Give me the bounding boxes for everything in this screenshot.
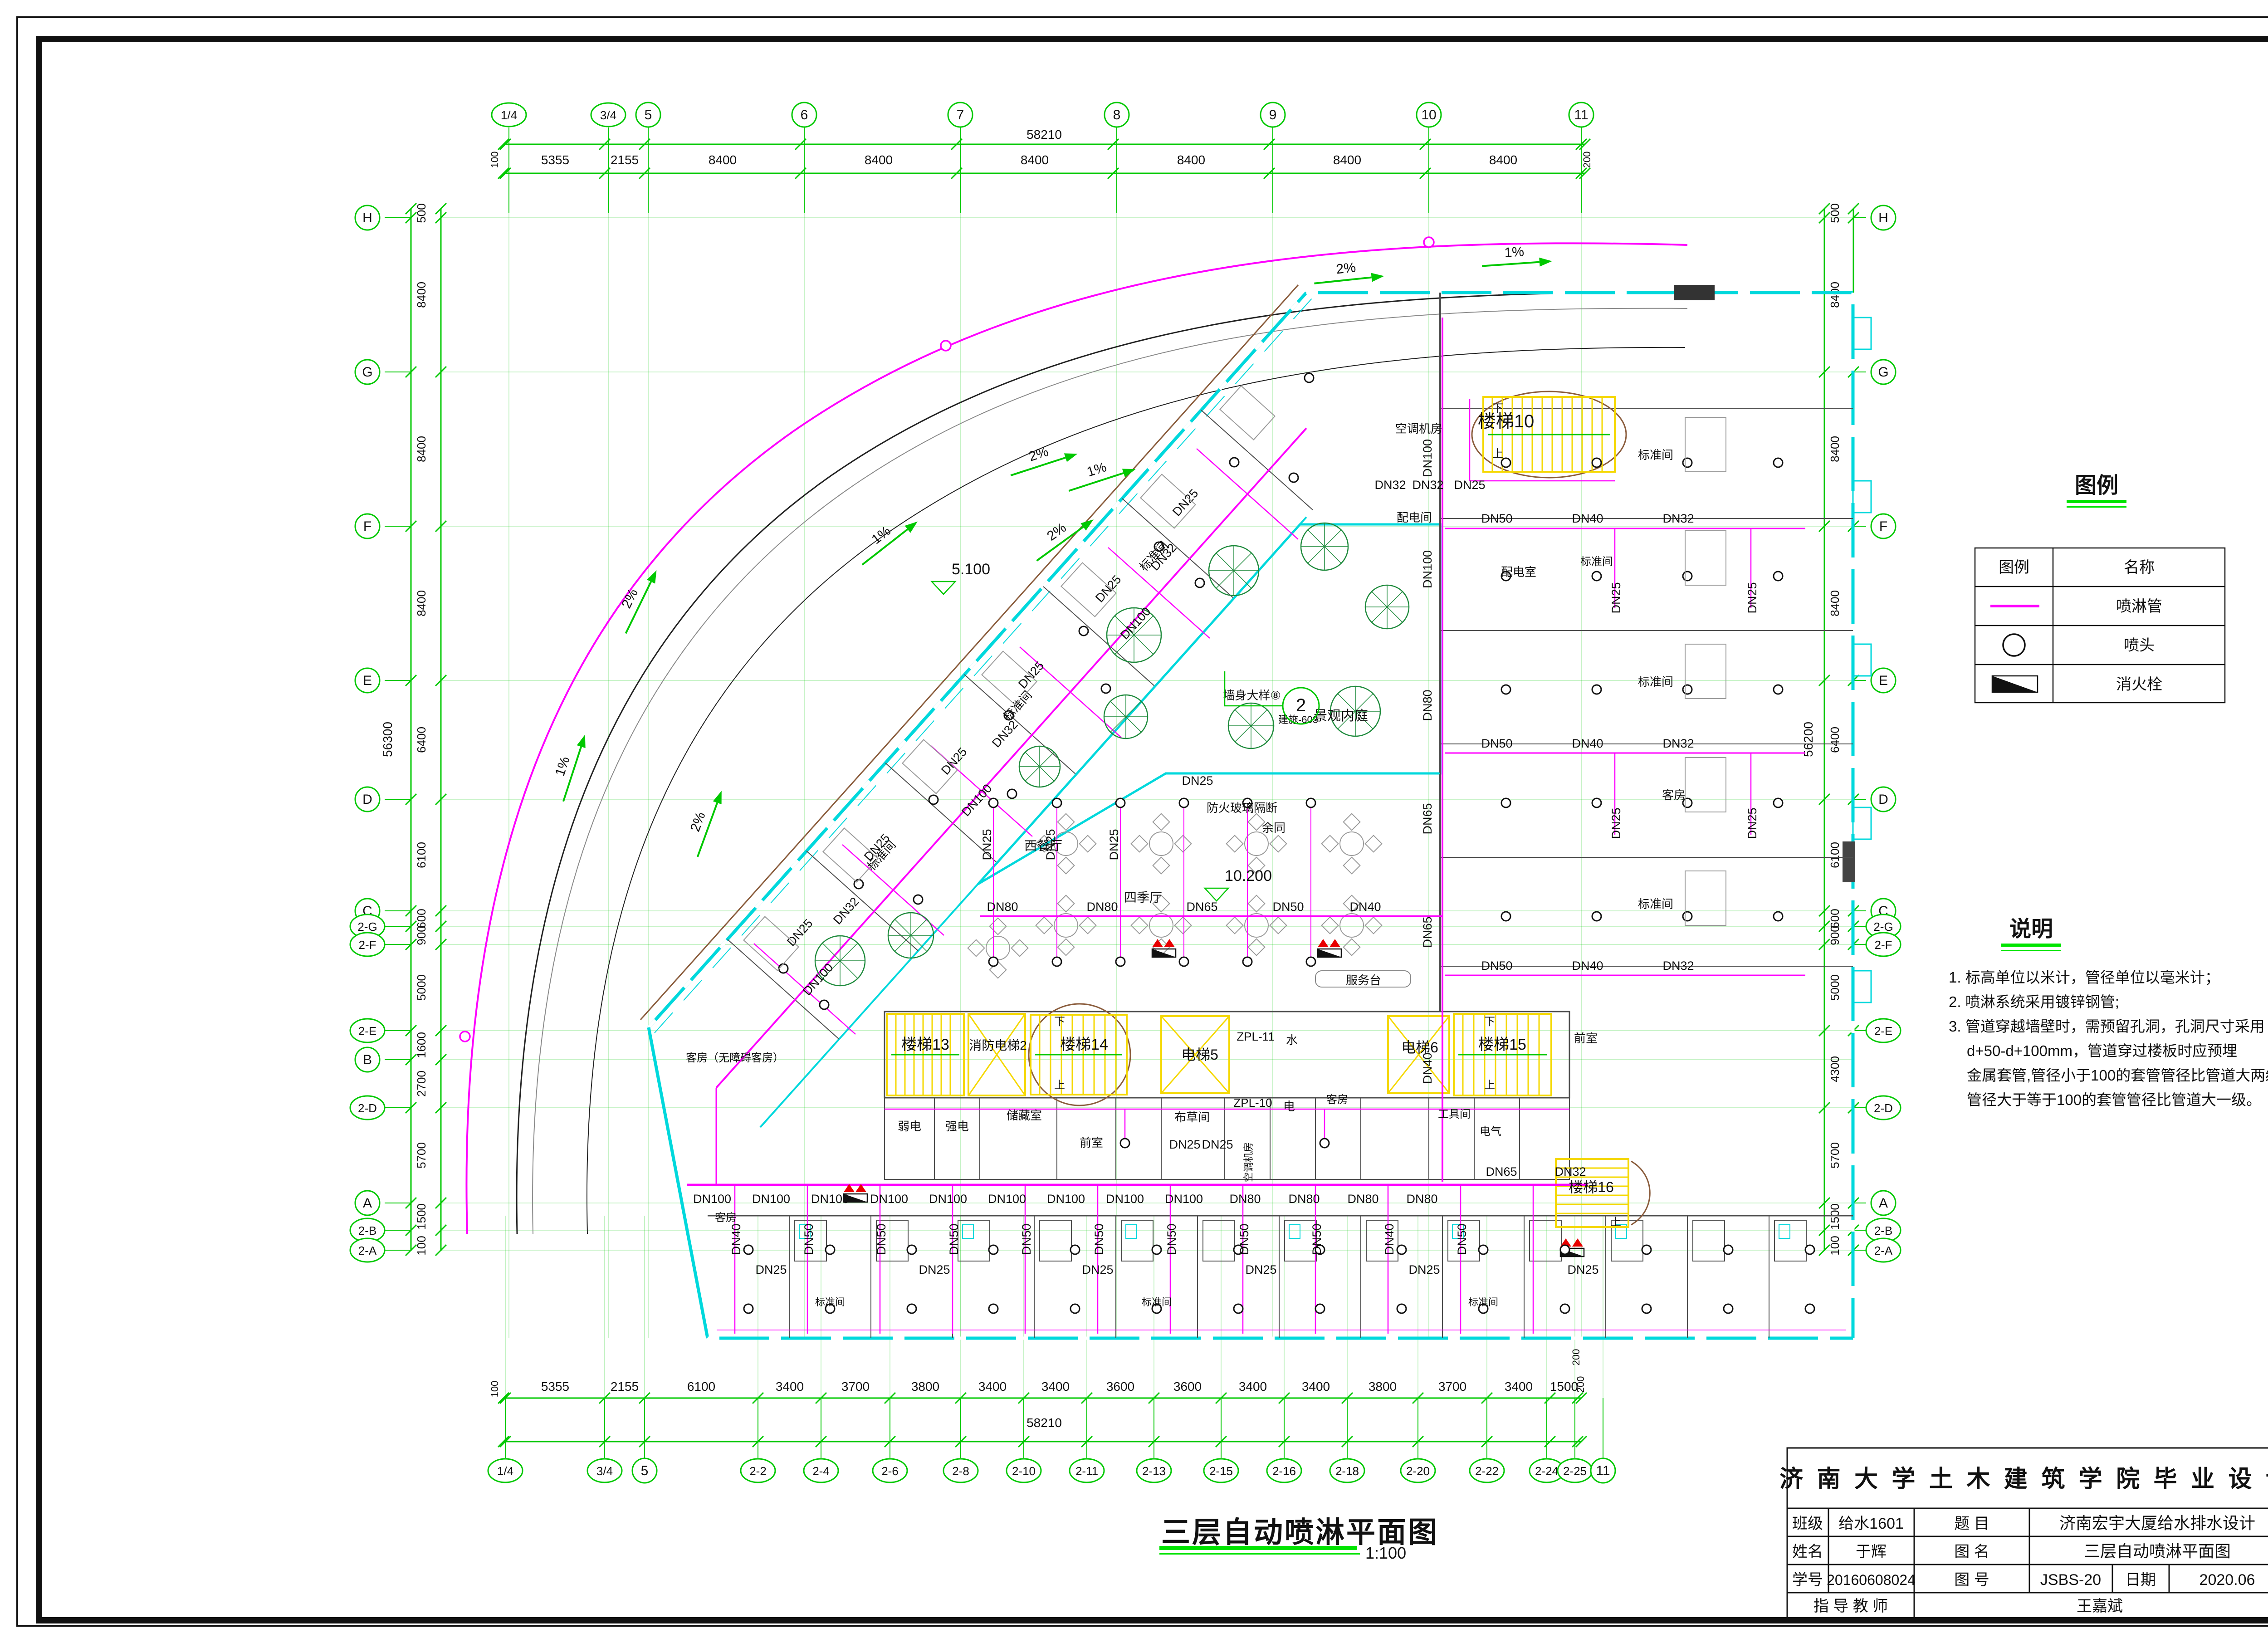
grid-top-8-label: 8 xyxy=(1113,108,1121,122)
pipe-label: DN25 xyxy=(980,829,994,860)
sprinkler-head-icon xyxy=(1683,572,1692,581)
grid-bottom-2-11-label: 2-11 xyxy=(1075,1464,1098,1478)
sprinkler-head-icon xyxy=(1774,912,1783,921)
title-block: 济 南 大 学 土 木 建 筑 学 院 毕 业 设 计 班级 给水1601 题 … xyxy=(1779,1448,2268,1620)
pipe-label: DN32 xyxy=(1662,737,1694,750)
sprinkler-head-icon xyxy=(1501,912,1510,921)
room-label: 工具间 xyxy=(1438,1108,1471,1120)
elevation-triangle-icon xyxy=(932,582,955,594)
pipe-label: DN65 xyxy=(1421,803,1434,834)
wall-hatch xyxy=(1674,285,1715,300)
sprinkler-head-icon xyxy=(1306,798,1315,807)
pipe-label: DN40 xyxy=(1572,737,1603,750)
glyph xyxy=(911,919,927,935)
grid-bottom-2-24-label: 2-24 xyxy=(1535,1464,1559,1478)
room-label: 标准间 xyxy=(1638,675,1673,689)
room-label: 消防电梯2 xyxy=(969,1038,1027,1052)
sprinkler-head-icon xyxy=(1070,1304,1080,1313)
sprinkler-head-icon xyxy=(1052,957,1061,966)
room-label: 电 xyxy=(1283,1100,1295,1113)
glyph xyxy=(1134,635,1153,654)
sprinkler-head-icon xyxy=(1774,798,1783,807)
note-line: 管径大于等于100的套管管径比管道大一级。 xyxy=(1967,1091,2261,1108)
glyph xyxy=(1235,710,1251,726)
grid-bottom-2-10-label: 2-10 xyxy=(1012,1464,1036,1478)
sprinkler-head-icon xyxy=(1179,798,1188,807)
sprinkler-head-icon xyxy=(1152,1245,1161,1254)
left-dim: 8400 xyxy=(415,590,428,616)
grid-bottom-2-16-label: 2-16 xyxy=(1272,1464,1296,1478)
tree-icon xyxy=(1228,703,1274,748)
tree-icon xyxy=(1104,695,1148,738)
tree-icon xyxy=(888,913,934,958)
slope-label: 1% xyxy=(552,755,573,778)
pipe-label: DN80 xyxy=(1421,689,1434,721)
right-dim: 8400 xyxy=(1828,436,1842,462)
legend: 图例 图例 名称 喷淋管 喷头 消火栓 xyxy=(1975,474,2225,703)
grid-left-D-label: D xyxy=(362,792,372,807)
room-label: 下 xyxy=(1054,1016,1065,1028)
bottom-total-dim: 58210 xyxy=(1026,1416,1062,1430)
pipe-label: DN50 xyxy=(1481,512,1512,525)
room-label: 客房（无障碍客房） xyxy=(686,1052,784,1064)
grid-bottom-2-6-label: 2-6 xyxy=(881,1464,899,1478)
left-dim: 6400 xyxy=(415,727,428,753)
dining-table xyxy=(1322,814,1382,874)
note-line: 1. 标高单位以米计，管径单位以毫米计； xyxy=(1949,969,2220,986)
room-label: 标准间 xyxy=(1142,1296,1172,1308)
sprinkler-head-icon xyxy=(989,1304,998,1313)
pipe-label: DN40 xyxy=(1572,959,1603,973)
glyph xyxy=(1314,278,1371,284)
grid-left-2-B-label: 2-B xyxy=(358,1224,376,1237)
glyph xyxy=(1235,726,1251,742)
stair-13 xyxy=(887,1014,964,1095)
pipe-label: DN50 xyxy=(1020,1223,1033,1255)
glyph xyxy=(840,961,858,978)
figno-value: JSBS-20 xyxy=(2040,1571,2101,1589)
grid-right-F-label: F xyxy=(1879,519,1887,534)
glyph xyxy=(968,940,985,957)
top-dim: 8400 xyxy=(865,153,893,167)
room-label: ZPL-10 xyxy=(1233,1096,1272,1110)
glyph xyxy=(1270,836,1287,852)
pipe-label: DN32 xyxy=(1374,478,1406,492)
notes-underline-thick xyxy=(2001,944,2061,947)
room-label: 前室 xyxy=(1574,1032,1598,1045)
grid-left-A-label: A xyxy=(363,1196,372,1211)
grid-right-2-A-label: 2-A xyxy=(1874,1244,1893,1257)
dining-table xyxy=(1131,814,1192,874)
glyph xyxy=(1080,836,1096,852)
grid-right-2-D-label: 2-D xyxy=(1874,1101,1893,1115)
sprinkler-head-icon xyxy=(1724,1245,1733,1254)
glyph xyxy=(1227,917,1243,934)
right-dim: 5000 xyxy=(1828,974,1842,1001)
top-dim: 5355 xyxy=(541,153,569,167)
pipe-label: DN80 xyxy=(1229,1192,1261,1206)
sprinkler-head-icon xyxy=(1642,1304,1651,1313)
room-label: 水 xyxy=(1286,1033,1298,1047)
slope-arrow: 2% xyxy=(609,562,661,636)
right-total-dim: 56200 xyxy=(1801,722,1815,757)
room-label: 楼梯13 xyxy=(901,1036,949,1053)
bottom-dim: 3400 xyxy=(1239,1379,1267,1394)
top-dim: 200 xyxy=(1581,152,1593,168)
sprinkler-head-icon xyxy=(989,798,998,807)
sprinkler-head-icon xyxy=(1805,1245,1814,1254)
grid-left-2-E-label: 2-E xyxy=(358,1024,376,1038)
subject-label: 题 目 xyxy=(1954,1515,1989,1532)
sprinkler-head-icon xyxy=(1397,1245,1406,1254)
tree-icon xyxy=(1301,523,1348,570)
pipe-label: DN80 xyxy=(1288,1192,1320,1206)
left-dim: 900 xyxy=(415,925,428,945)
room-label: 强电 xyxy=(945,1120,969,1133)
room-label: 四季厅 xyxy=(1124,890,1162,905)
slope-label: 1% xyxy=(1504,244,1525,260)
glyph xyxy=(1058,857,1075,874)
pipe-label: DN40 xyxy=(1572,512,1603,525)
glyph xyxy=(1482,262,1540,266)
grid-top-11-label: 11 xyxy=(1574,108,1588,122)
left-dim: 1500 xyxy=(415,1203,428,1230)
name-label: 姓名 xyxy=(1792,1543,1823,1560)
sprinkler-head-icon xyxy=(826,1245,835,1254)
top-dim: 8400 xyxy=(709,153,737,167)
room-label: 楼梯16 xyxy=(1569,1179,1614,1195)
left-dim: 100 xyxy=(415,1236,428,1255)
interior-walls xyxy=(708,293,1853,1338)
room-label: ZPL-11 xyxy=(1237,1030,1274,1043)
pipe-label: DN25 xyxy=(938,745,969,777)
glyph xyxy=(1340,832,1364,856)
glyph xyxy=(895,919,911,935)
legend-row-pipe: 喷淋管 xyxy=(2116,598,2162,615)
sprinkler-head-icon xyxy=(1320,1139,1329,1148)
sprinkler-head-icon xyxy=(1116,798,1125,807)
name-value: 于辉 xyxy=(1856,1543,1887,1560)
pipe-label: DN25 xyxy=(1169,1138,1200,1151)
figname-label: 图 名 xyxy=(1954,1543,1989,1560)
glyph xyxy=(1058,895,1075,912)
pipe-label: DN25 xyxy=(1609,582,1623,613)
pipe-label: DN100 xyxy=(1047,1192,1085,1206)
top-dim: 100 xyxy=(489,152,500,168)
sprinkler-head-icon xyxy=(1592,458,1601,467)
sprinkler-head-icon xyxy=(907,1304,916,1313)
room-label: 标准间 xyxy=(815,1296,845,1308)
sid-value: 20160608024 xyxy=(1827,1572,1916,1588)
glyph xyxy=(1153,814,1170,831)
grid-bottom-2-22-label: 2-22 xyxy=(1475,1464,1499,1478)
room-label: 配电室 xyxy=(1501,565,1536,579)
grid-right-2-F-label: 2-F xyxy=(1875,938,1892,952)
sprinkler-head-icon xyxy=(1592,685,1601,694)
glyph xyxy=(1372,592,1387,607)
glyph xyxy=(1234,553,1251,571)
grid-bottom-2-13-label: 2-13 xyxy=(1142,1464,1166,1478)
grid-right-G-label: G xyxy=(1878,365,1888,380)
legend-row-hydrant: 消火栓 xyxy=(2116,676,2162,693)
sprinkler-head-icon xyxy=(1120,1139,1129,1148)
pipe-label: DN100 xyxy=(752,1192,790,1206)
sprinkler-head-icon xyxy=(1397,1304,1406,1313)
elevation-triangle-icon xyxy=(1205,888,1228,901)
slope-arrow: 2% xyxy=(1312,257,1385,288)
top-dim: 2155 xyxy=(611,153,639,167)
sprinkler-head-icon xyxy=(1592,912,1601,921)
grid-bottom-2-20-label: 2-20 xyxy=(1406,1464,1430,1478)
room-label: 下 xyxy=(1484,1016,1495,1028)
right-dim: 600 xyxy=(1828,909,1842,928)
sprinkler-head-icon xyxy=(1683,458,1692,467)
grid-bottom-5-label: 5 xyxy=(641,1463,649,1478)
grid-bottom-3/4-label: 3/4 xyxy=(596,1464,613,1478)
glyph xyxy=(1325,530,1341,547)
room-label: 标准间 xyxy=(1468,1296,1498,1308)
room-label: 下 xyxy=(1492,402,1503,415)
room-label: 电气 xyxy=(1480,1125,1501,1138)
sprinkler-head-icon xyxy=(1592,572,1601,581)
pipe-label: DN50 xyxy=(802,1223,816,1255)
grid-right-H-label: H xyxy=(1878,210,1888,225)
glyph xyxy=(1245,832,1268,856)
pipe-label: DN40 xyxy=(1349,900,1381,914)
pipe-label: DN100 xyxy=(1421,550,1434,588)
class-value: 给水1601 xyxy=(1838,1515,1904,1532)
slope-label: 2% xyxy=(1335,260,1357,277)
legend-underline-thin xyxy=(2067,506,2126,508)
glyph xyxy=(1175,836,1192,852)
slope-arrow: 1% xyxy=(850,506,920,568)
glyph xyxy=(1365,917,1382,934)
glyph xyxy=(1234,571,1251,588)
note-line: 2. 喷淋系统采用镀锌钢管; xyxy=(1949,993,2119,1010)
grid-bottom-2-25-label: 2-25 xyxy=(1563,1464,1587,1478)
callout-number: 2 xyxy=(1296,695,1306,715)
pipe-label: DN50 xyxy=(1455,1223,1469,1255)
pipe-label: DN50 xyxy=(1481,737,1512,750)
sprinkler-head-symbol xyxy=(2003,634,2025,656)
bottom-dim: 3400 xyxy=(978,1379,1007,1394)
left-dim: 2700 xyxy=(415,1071,428,1097)
notes-title: 说明 xyxy=(2009,917,2053,941)
glyph xyxy=(1251,726,1267,742)
figname-value: 三层自动喷淋平面图 xyxy=(2084,1542,2231,1560)
sprinkler-head-icon xyxy=(1179,957,1188,966)
pipe-label: DN32 xyxy=(989,718,1020,750)
glyph xyxy=(1344,939,1360,956)
left-total-dim: 56300 xyxy=(381,722,395,757)
bottom-dim: 3600 xyxy=(1173,1379,1202,1394)
grid-left-G-label: G xyxy=(362,365,372,380)
bed-icon xyxy=(1220,386,1275,440)
room-label: 上 xyxy=(1610,1216,1621,1228)
sprinkler-head-icon xyxy=(1592,798,1601,807)
top-dim: 8400 xyxy=(1333,153,1361,167)
title-underline-thin xyxy=(1159,1553,1360,1555)
room-label: 客房 xyxy=(1662,788,1686,802)
pipe-label: DN25 xyxy=(1082,1263,1113,1276)
sprinkler-head-icon xyxy=(1560,1304,1569,1313)
room-label: 配电间 xyxy=(1397,511,1432,524)
sprinkler-head-icon xyxy=(820,1000,829,1009)
glyph xyxy=(986,936,1010,960)
pipe-label: DN25 xyxy=(755,1263,787,1276)
grid-left-F-label: F xyxy=(363,519,371,534)
pipe-label: DN80 xyxy=(1347,1192,1378,1206)
room-label: 标准间 xyxy=(1001,688,1034,724)
date-value: 2020.06 xyxy=(2200,1571,2255,1589)
pipe-label: DN100 xyxy=(870,1192,908,1206)
grid-left-2-A-label: 2-A xyxy=(358,1244,377,1257)
room-name-labels: 楼梯10空调机房配电间配电室标准间标准间标准间客房标准间标准间标准间标准间客房（… xyxy=(686,402,1686,1308)
grid-top-5-label: 5 xyxy=(645,108,652,122)
pipe-label: DN25 xyxy=(1454,478,1485,492)
left-dim: 6100 xyxy=(415,842,428,868)
sprinkler-head-icon xyxy=(1243,957,1252,966)
room-label: 电梯5 xyxy=(1181,1046,1218,1063)
pipe-label: DN25 xyxy=(1016,659,1046,691)
figno-label: 图 号 xyxy=(1954,1571,1989,1589)
bottom-dim: 2155 xyxy=(611,1379,639,1394)
sprinkler-head-icon xyxy=(1774,458,1783,467)
pipe-label: DN32 xyxy=(1662,512,1694,525)
pipe-label: DN100 xyxy=(1106,1192,1144,1206)
pipe-label: DN100 xyxy=(693,1192,731,1206)
sprinkler-head-icon xyxy=(1683,912,1692,921)
right-dim: 6400 xyxy=(1828,727,1842,753)
sprinkler-head-icon xyxy=(1116,957,1125,966)
room-label: 楼梯14 xyxy=(1060,1036,1108,1053)
pipe-label: DN100 xyxy=(811,1192,849,1206)
slope-arrow: 1% xyxy=(1063,451,1137,495)
glyph xyxy=(1325,547,1341,563)
elevation-value: 10.200 xyxy=(1225,867,1272,885)
sprinkler-head-icon xyxy=(1315,1304,1325,1313)
grid-right-2-B-label: 2-B xyxy=(1874,1224,1892,1237)
room-label: 墙身大样⑧ xyxy=(1223,689,1281,702)
right-dim: 100 xyxy=(1828,1236,1842,1255)
left-dim: 5700 xyxy=(415,1142,428,1169)
glyph xyxy=(1308,530,1325,547)
left-dim: 8400 xyxy=(415,436,428,462)
grid-bottom-2-4-label: 2-4 xyxy=(812,1464,830,1478)
sprinkler-head-icon xyxy=(1724,1304,1733,1313)
road-sprinkler-icon xyxy=(941,341,951,351)
notes: 说明 1. 标高单位以米计，管径单位以毫米计；2. 喷淋系统采用镀锌钢管;3. … xyxy=(1949,917,2268,1108)
room-label: 余同 xyxy=(1262,821,1286,835)
pipe-label: DN25 xyxy=(1202,1138,1233,1151)
stair-14 xyxy=(1029,1004,1130,1105)
room-label: 上 xyxy=(1492,448,1503,460)
bottom-dim: 5355 xyxy=(541,1379,569,1394)
slope-arrow: 1% xyxy=(1481,242,1552,271)
sprinkler-head-icon xyxy=(929,795,938,804)
note-line: d+50-d+100mm，管道穿过楼板时应预埋 xyxy=(1967,1042,2237,1059)
bathroom-pods xyxy=(795,1220,1806,1261)
room-label: 标准间 xyxy=(1638,448,1673,462)
room-label: 楼梯10 xyxy=(1478,411,1535,431)
grid-bottom-2-18-label: 2-18 xyxy=(1335,1464,1359,1478)
sprinkler-head-icon xyxy=(1774,685,1783,694)
pipe-label: DN32 xyxy=(1662,959,1694,973)
pipe-label: DN25 xyxy=(919,1263,950,1276)
pipe-label: DN50 xyxy=(1092,1223,1106,1255)
sprinkler-head-icon xyxy=(1052,798,1061,807)
class-label: 班级 xyxy=(1792,1515,1823,1532)
bottom-dim: 3800 xyxy=(911,1379,939,1394)
pipe-label: DN100 xyxy=(1165,1192,1203,1206)
pipe-label: DN80 xyxy=(1406,1192,1437,1206)
glyph xyxy=(1270,917,1287,934)
room-label: 前室 xyxy=(1080,1136,1103,1149)
tree-icon xyxy=(1209,546,1259,596)
glyph xyxy=(1110,701,1126,717)
pipe-label: DN25 xyxy=(1182,774,1213,787)
bottom-dim: 3400 xyxy=(1041,1379,1070,1394)
tree-icon xyxy=(1019,746,1060,787)
room-label: 标准间 xyxy=(1638,897,1673,911)
bottom-dim: 6100 xyxy=(687,1379,715,1394)
legend-header-name: 名称 xyxy=(2124,559,2155,576)
grid-top-3/4-label: 3/4 xyxy=(600,108,616,122)
left-dim: 8400 xyxy=(415,282,428,308)
grid-left-2-D-label: 2-D xyxy=(358,1101,377,1115)
legend-row-head: 喷头 xyxy=(2124,637,2155,654)
glyph xyxy=(1248,895,1265,912)
glyph xyxy=(1040,752,1054,767)
pipe-label: DN25 xyxy=(1567,1263,1598,1276)
slope-label: 2% xyxy=(1027,444,1050,465)
pipe-label: DN100 xyxy=(1421,439,1434,477)
road-sprinkler-icon xyxy=(1424,237,1434,247)
left-dim: 1600 xyxy=(415,1032,428,1058)
glyph xyxy=(1344,857,1360,874)
glyph xyxy=(1387,592,1403,607)
grid-top-9-label: 9 xyxy=(1269,108,1277,122)
top-dim: 8400 xyxy=(1021,153,1049,167)
sprinkler-head-icon xyxy=(1306,957,1315,966)
advisor-label: 指 导 教 师 xyxy=(1813,1598,1888,1615)
top-dim: 8400 xyxy=(1489,153,1517,167)
sprinkler-head-icon xyxy=(914,895,923,904)
right-dim: 8400 xyxy=(1828,590,1842,616)
grid-bottom-11-label: 11 xyxy=(1596,1463,1610,1478)
room-label: 弱电 xyxy=(898,1120,921,1133)
glyph xyxy=(1308,547,1325,563)
slope-arrow: 2% xyxy=(1026,504,1096,564)
room-label: 客房 xyxy=(1326,1094,1348,1106)
pipe-label: DN50 xyxy=(947,1223,961,1255)
grid-left-2-G-label: 2-G xyxy=(357,920,377,934)
right-dim: 1500 xyxy=(1828,1203,1842,1230)
sprinkler-head-icon xyxy=(744,1245,753,1254)
glyph xyxy=(1251,710,1267,726)
sprinkler-head-icon xyxy=(1560,1245,1569,1254)
room-label: 空调机房 xyxy=(1243,1142,1254,1182)
grid-top-10-label: 10 xyxy=(1421,108,1436,122)
pipe-label: DN100 xyxy=(929,1192,967,1206)
grid-top-7-label: 7 xyxy=(957,108,964,122)
pipe-label: DN32 xyxy=(1412,478,1443,492)
road-sprinkler-icon xyxy=(460,1032,470,1042)
grid-top-1/4-label: 1/4 xyxy=(501,108,517,122)
sprinkler-head-icon xyxy=(1501,685,1510,694)
right-dim: 4300 xyxy=(1828,1056,1842,1082)
right-dim: 8400 xyxy=(1828,282,1842,308)
